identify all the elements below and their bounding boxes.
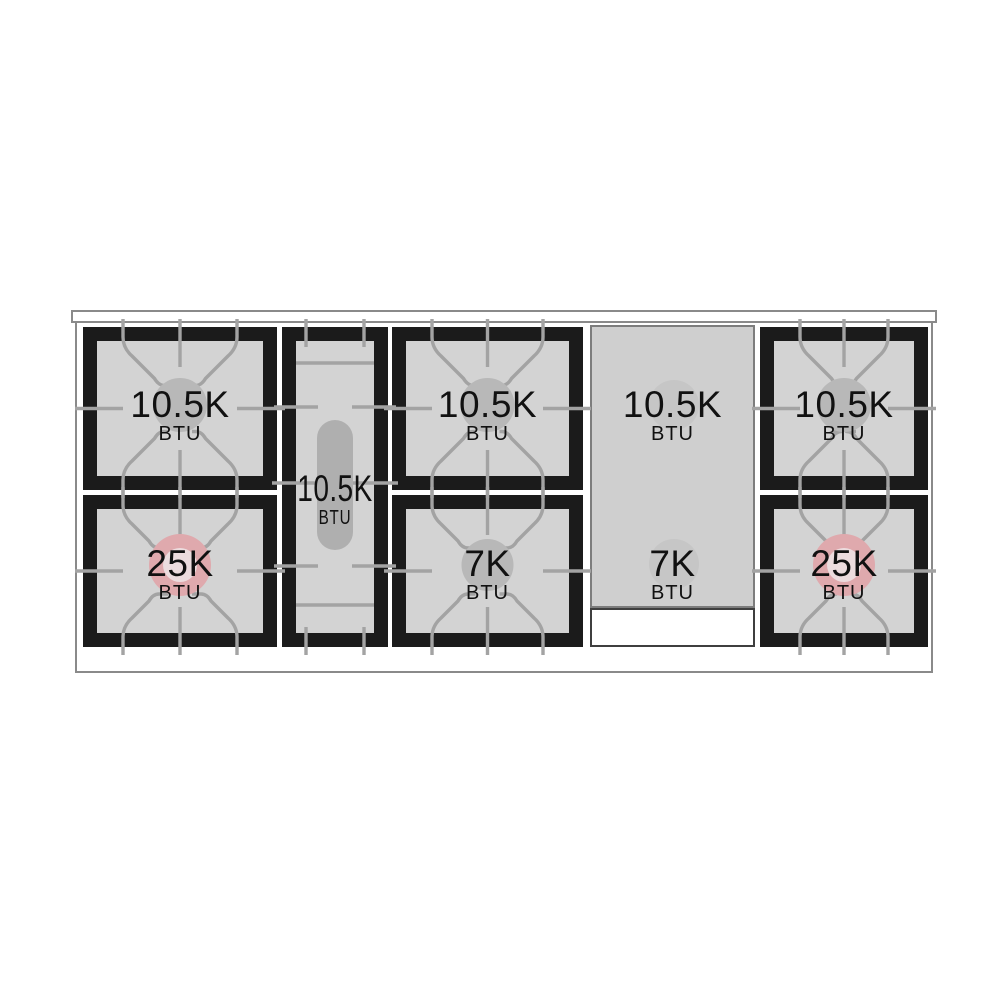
burner-btu-value: 7K [392, 545, 583, 583]
burner-middle-rear: 10.5K BTU [392, 327, 583, 490]
burner-btu-value: 10.5K [83, 386, 277, 424]
burner-btu-unit: BTU [392, 425, 583, 443]
burner-btu-value: 7K [592, 545, 753, 583]
burner-btu-unit: BTU [592, 584, 753, 602]
griddle-drip-tray [590, 608, 755, 647]
burner-btu-value: 25K [760, 545, 928, 583]
burner-btu-unit: BTU [392, 584, 583, 602]
burner-btu-unit: BTU [83, 425, 277, 443]
burner-btu-value: 10.5K [392, 386, 583, 424]
burner-btu-value: 10.5K [295, 470, 376, 508]
burner-center-oval: 10.5K BTU [282, 327, 388, 647]
burner-btu-value: 25K [83, 545, 277, 583]
burner-middle-front: 7K BTU [392, 495, 583, 647]
burner-left-rear: 10.5K BTU [83, 327, 277, 490]
burner-btu-unit: BTU [83, 584, 277, 602]
range-top-diagram: 10.5K BTU 25K BTU 10.5K BTU 10.5K BTU 7K… [0, 0, 1000, 1000]
burner-right-rear: 10.5K BTU [760, 327, 928, 490]
griddle-plate: 10.5K BTU 7K BTU [590, 325, 755, 608]
burner-left-front: 25K BTU [83, 495, 277, 647]
burner-btu-unit: BTU [760, 425, 928, 443]
burner-btu-value: 10.5K [760, 386, 928, 424]
burner-right-front: 25K BTU [760, 495, 928, 647]
burner-btu-unit: BTU [295, 509, 376, 527]
burner-btu-value: 10.5K [592, 386, 753, 424]
burner-btu-unit: BTU [760, 584, 928, 602]
burner-btu-unit: BTU [592, 425, 753, 443]
